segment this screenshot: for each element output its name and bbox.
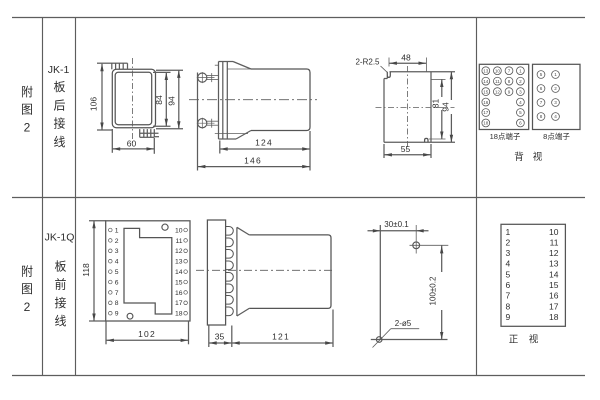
svg-text:12: 12 [549,248,559,258]
svg-text:12: 12 [175,248,183,255]
svg-text:16: 16 [175,290,183,297]
svg-text:4: 4 [554,114,557,119]
svg-text:正: 正 [509,335,519,346]
svg-text:附: 附 [21,85,33,99]
svg-text:5: 5 [506,269,511,279]
svg-text:8: 8 [506,301,511,311]
svg-text:4: 4 [519,100,522,105]
svg-text:4: 4 [506,259,511,269]
svg-text:线: 线 [53,135,65,149]
svg-text:3: 3 [519,89,522,94]
svg-text:线: 线 [54,314,66,328]
svg-text:15: 15 [549,280,559,290]
svg-text:17: 17 [175,300,183,307]
svg-text:12: 12 [495,89,501,94]
svg-text:图: 图 [21,103,33,117]
svg-text:8点端子: 8点端子 [543,131,570,141]
svg-text:3: 3 [115,248,119,255]
svg-text:8: 8 [115,300,119,307]
svg-text:8: 8 [508,79,511,84]
svg-text:9: 9 [508,89,511,94]
svg-text:9: 9 [115,311,119,318]
svg-text:后: 后 [53,98,65,112]
svg-text:视: 视 [533,151,543,163]
svg-text:55: 55 [401,144,411,154]
svg-text:板: 板 [53,80,65,94]
svg-text:6: 6 [540,86,543,91]
svg-text:18点端子: 18点端子 [490,131,521,141]
svg-text:11: 11 [495,79,500,84]
svg-text:附: 附 [21,265,33,279]
svg-text:81: 81 [430,99,440,109]
svg-text:视: 视 [529,334,539,346]
svg-text:JK-1Q: JK-1Q [45,232,75,244]
svg-text:30±0.1: 30±0.1 [384,220,409,229]
svg-text:11: 11 [550,237,559,247]
svg-text:1: 1 [506,227,511,237]
svg-text:48: 48 [401,52,411,62]
svg-text:图: 图 [21,282,33,296]
svg-text:3: 3 [554,100,557,105]
svg-text:118: 118 [81,263,91,277]
svg-text:13: 13 [549,259,559,269]
svg-text:100±0.2: 100±0.2 [429,276,438,305]
svg-text:9: 9 [506,312,511,322]
svg-text:16: 16 [483,100,489,105]
svg-text:16: 16 [549,291,559,301]
svg-text:7: 7 [508,68,511,73]
svg-text:5: 5 [540,72,543,77]
svg-text:18: 18 [175,311,183,318]
svg-text:JK-1: JK-1 [48,64,70,76]
svg-text:2: 2 [115,238,119,245]
svg-text:13: 13 [483,68,489,73]
svg-text:2: 2 [24,300,31,314]
svg-text:94: 94 [441,102,451,112]
svg-text:10: 10 [549,227,559,237]
svg-text:15: 15 [175,279,183,286]
svg-text:7: 7 [506,291,511,301]
svg-text:13: 13 [175,259,183,266]
svg-text:7: 7 [115,290,119,297]
svg-text:1: 1 [554,72,557,77]
svg-text:5: 5 [519,110,522,115]
svg-text:17: 17 [483,110,489,115]
svg-text:17: 17 [549,301,559,311]
svg-text:18: 18 [549,312,559,322]
svg-text:15: 15 [483,89,489,94]
svg-text:3: 3 [506,248,511,258]
svg-text:2: 2 [24,120,31,134]
svg-text:10: 10 [495,68,501,73]
svg-text:2: 2 [554,86,557,91]
svg-text:2-ø5: 2-ø5 [395,319,412,328]
svg-text:35: 35 [215,332,225,342]
svg-text:146: 146 [244,155,262,165]
svg-text:4: 4 [115,259,119,266]
svg-text:10: 10 [175,227,183,234]
svg-text:60: 60 [127,138,137,148]
svg-text:前: 前 [54,277,66,292]
svg-text:6: 6 [519,121,522,126]
svg-text:94: 94 [167,96,177,106]
svg-text:接: 接 [54,295,66,310]
svg-text:7: 7 [540,100,543,105]
svg-text:11: 11 [175,238,182,245]
svg-text:124: 124 [255,138,273,148]
svg-text:6: 6 [115,279,119,286]
svg-text:18: 18 [483,121,489,126]
svg-text:8: 8 [540,114,543,119]
svg-text:5: 5 [115,269,119,276]
svg-text:2-R2.5: 2-R2.5 [355,57,380,66]
svg-text:2: 2 [506,237,511,247]
svg-text:接: 接 [53,116,65,131]
svg-text:121: 121 [272,332,290,342]
svg-text:1: 1 [115,227,119,234]
svg-text:14: 14 [175,269,183,276]
svg-text:2: 2 [519,79,522,84]
svg-text:106: 106 [89,97,99,111]
svg-text:6: 6 [506,280,511,290]
svg-text:14: 14 [549,269,559,279]
svg-text:板: 板 [54,260,66,274]
svg-text:102: 102 [138,329,156,339]
svg-text:14: 14 [483,79,489,84]
svg-text:背: 背 [514,151,524,163]
svg-text:84: 84 [154,95,164,105]
svg-text:1: 1 [519,68,522,73]
